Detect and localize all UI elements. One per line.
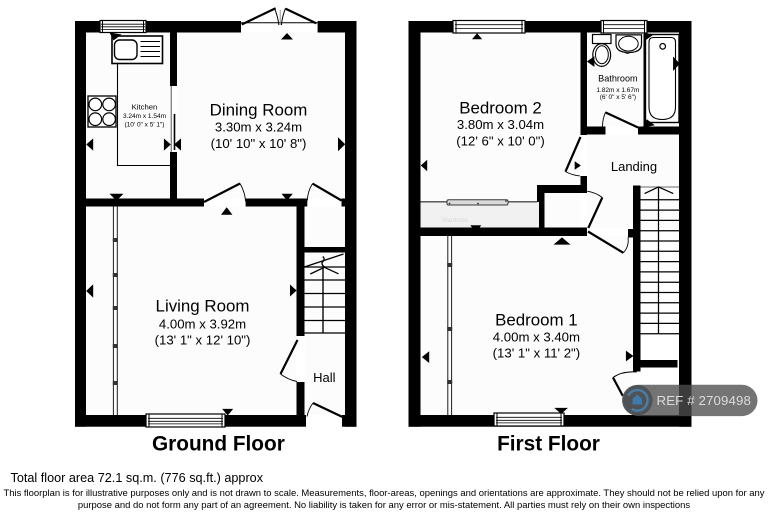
- svg-text:(12' 6" x 10' 0"): (12' 6" x 10' 0"): [456, 134, 544, 149]
- svg-text:4.00m x 3.92m: 4.00m x 3.92m: [159, 317, 246, 332]
- svg-text:Dining Room: Dining Room: [210, 101, 308, 120]
- svg-text:Total floor area 72.1 sq.m. (7: Total floor area 72.1 sq.m. (776 sq.ft.)…: [11, 471, 264, 485]
- svg-text:4.00m x 3.40m: 4.00m x 3.40m: [493, 330, 580, 345]
- svg-text:3.24m x 1.54m: 3.24m x 1.54m: [123, 113, 166, 120]
- svg-text:(13' 1" x 11' 2"): (13' 1" x 11' 2"): [493, 346, 580, 361]
- svg-text:3.80m x 3.04m: 3.80m x 3.04m: [457, 117, 544, 132]
- svg-text:First Floor: First Floor: [497, 433, 600, 456]
- svg-text:Kitchen: Kitchen: [132, 103, 158, 112]
- svg-text:Hall: Hall: [313, 370, 336, 385]
- svg-text:(10' 0" x 5' 1"): (10' 0" x 5' 1"): [125, 121, 165, 128]
- svg-text:Landing: Landing: [611, 159, 657, 174]
- svg-text:Wardrobe: Wardrobe: [442, 218, 469, 224]
- svg-text:(6' 0" x 5' 6"): (6' 0" x 5' 6"): [600, 94, 636, 101]
- svg-text:This floorplan is for illustra: This floorplan is for illustrative purpo…: [3, 488, 764, 499]
- svg-text:(13' 1" x 12' 10"): (13' 1" x 12' 10"): [155, 333, 251, 348]
- svg-text:Bedroom 2: Bedroom 2: [459, 99, 542, 118]
- svg-text:Bedroom 1: Bedroom 1: [495, 311, 578, 330]
- svg-text:Living Room: Living Room: [156, 297, 250, 316]
- svg-text:3.30m x 3.24m: 3.30m x 3.24m: [215, 120, 302, 135]
- svg-text:1.82m x 1.67m: 1.82m x 1.67m: [596, 87, 639, 94]
- svg-text:REF # 2709498: REF # 2709498: [657, 393, 751, 408]
- svg-text:Bathroom: Bathroom: [598, 73, 637, 83]
- svg-text:purpose and do not form any pa: purpose and do not form any part of an a…: [78, 500, 690, 511]
- svg-text:(10' 10" x 10' 8"): (10' 10" x 10' 8"): [211, 136, 307, 151]
- svg-text:Ground Floor: Ground Floor: [152, 433, 285, 456]
